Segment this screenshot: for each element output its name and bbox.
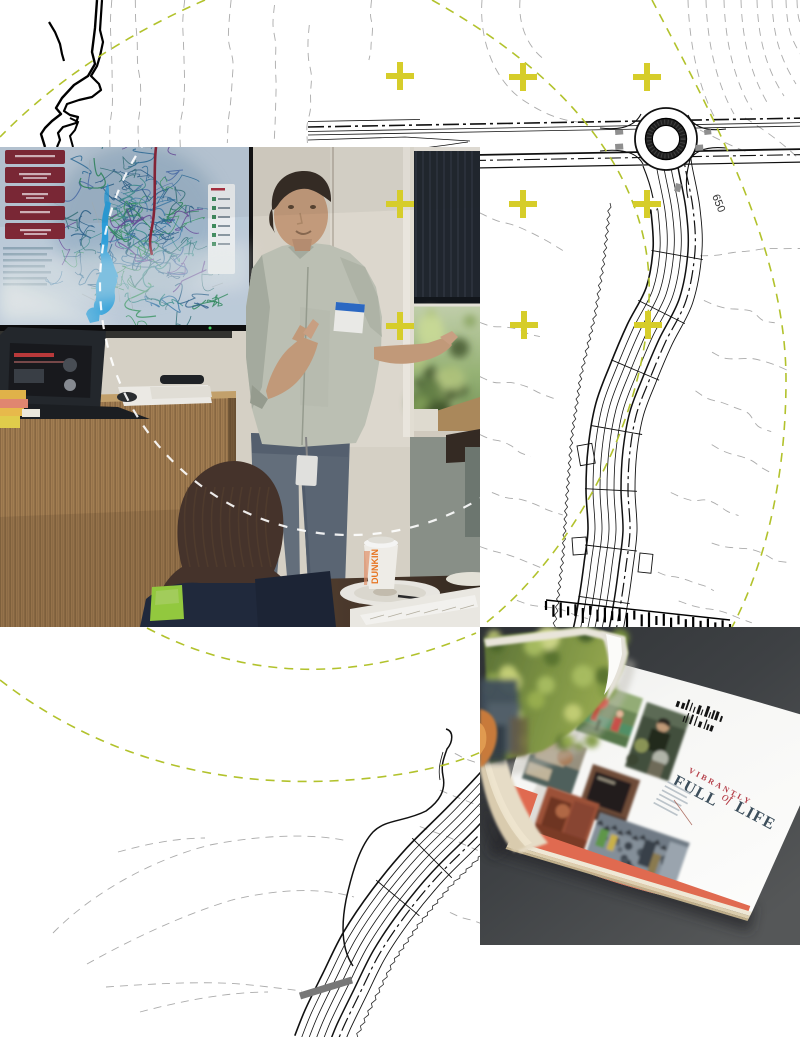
svg-text:650: 650 [709, 193, 727, 215]
